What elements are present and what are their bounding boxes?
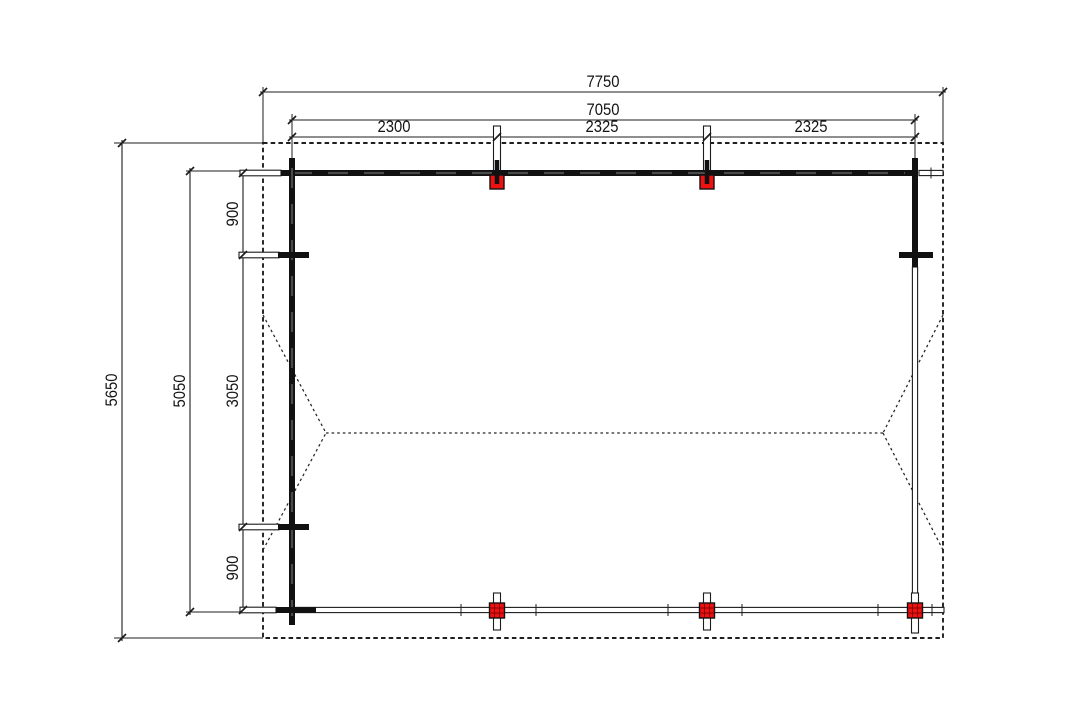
post-marker-front-1: [490, 603, 505, 618]
post-marker-front-2: [700, 603, 715, 618]
post-marker-back-2: [700, 160, 714, 189]
dim-label-frame-depth: 5050: [170, 375, 189, 408]
dim-label-seg-1: 900: [223, 202, 242, 227]
dim-label-seg-2: 3050: [223, 375, 242, 408]
dim-label-roof-depth: 5650: [102, 374, 121, 407]
dimension-labels: 7750 7050 2300 2325 2325 5650 5050 900 3…: [102, 72, 828, 581]
open-side-beams: [292, 267, 944, 613]
dim-label-roof-width: 7750: [587, 72, 620, 91]
dim-label-bay-2: 2325: [586, 117, 619, 136]
roof-overhang-outline: [263, 143, 943, 638]
post-marker-back-1: [490, 160, 504, 189]
post-square: [700, 603, 715, 618]
post-square: [908, 603, 923, 618]
front-beam: [292, 607, 944, 612]
walls: [276, 158, 933, 625]
dim-label-seg-3: 900: [223, 556, 242, 581]
post-square: [490, 603, 505, 618]
floor-plan-svg: 7750 7050 2300 2325 2325 5650 5050 900 3…: [0, 0, 1080, 726]
roof-hip-lines: [263, 315, 943, 550]
post-markers: [490, 160, 923, 618]
right-side-beam: [912, 267, 917, 600]
log-end-pieces: [239, 168, 943, 613]
floor-plan-canvas: 7750 7050 2300 2325 2325 5650 5050 900 3…: [0, 0, 1080, 726]
dim-label-bay-1: 2300: [378, 117, 411, 136]
roof-outline-rect: [263, 143, 943, 638]
post-marker-front-corner: [908, 603, 923, 618]
dim-label-bay-3: 2325: [795, 117, 828, 136]
